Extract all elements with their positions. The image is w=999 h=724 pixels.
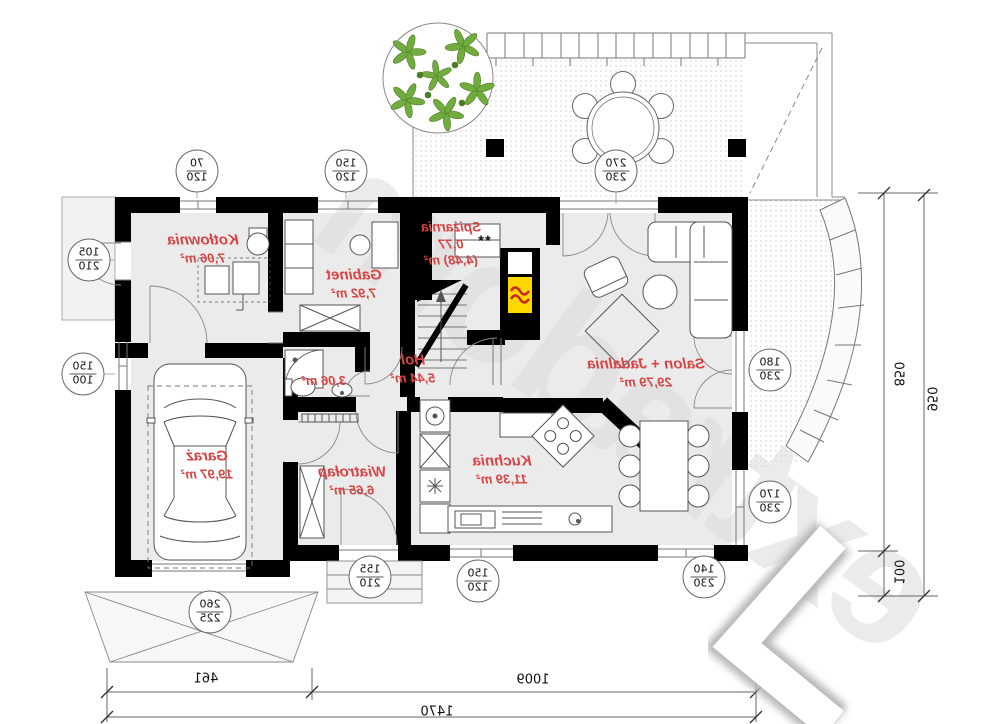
- dim-tag-kitchen-window-150x120: 150120: [457, 560, 500, 603]
- hall-cabinets: [420, 400, 450, 533]
- pantry-note-marker: **: [477, 233, 491, 250]
- floor-plan-page: extradom: [0, 0, 999, 724]
- dim-tag-side-door-105x210: 105210: [68, 239, 111, 282]
- dim-tag-terrace-door-270x230: 270230: [595, 150, 638, 193]
- dim-front-main: 1009: [516, 673, 549, 688]
- dim-tag-window-170x230: 170230: [749, 481, 792, 524]
- dim-terrace-step: 100: [891, 560, 906, 585]
- dim-depth-total: 950: [924, 387, 939, 412]
- dim-depth: 850: [891, 362, 906, 387]
- dim-front-total: 1470: [420, 705, 453, 720]
- room-label-salon: Salon + Jadalnia 29,79 m²: [587, 356, 705, 391]
- floor-plan-drawing: extradom: [0, 0, 999, 724]
- dim-tag-balcony-door-180x230: 180230: [749, 349, 792, 392]
- room-label-kotlownia: Kotłownia 7,06 m²: [167, 232, 239, 267]
- room-label-kuchnia: Kuchnia 11,39 m²: [472, 453, 531, 488]
- dim-front-garage: 461: [194, 672, 219, 687]
- dim-tag-front-door-155x210: 155210: [349, 556, 392, 599]
- room-label-bathroom: 3,06 m²: [302, 373, 347, 389]
- dim-tag-garage-window-150x100: 150100: [62, 353, 105, 396]
- room-label-hol: Hol 5,44 m²: [391, 352, 436, 387]
- dim-tag-window-140x230: 140230: [683, 556, 726, 599]
- dim-tag-garage-door-260x225: 260225: [189, 591, 232, 634]
- fireplace: [500, 248, 540, 340]
- room-label-gabinet: Gabinet 7,92 m²: [326, 267, 382, 302]
- room-label-wiatrolap: Wiatrołap 6,65 m²: [318, 464, 386, 499]
- dim-tag-window-70x120: 70120: [176, 150, 219, 193]
- dim-tag-window-150x120: 150120: [325, 150, 368, 193]
- room-label-garaz: Garaż 19,97 m²: [181, 448, 233, 483]
- room-label-spizarnia: Spiżarnia 0,77 (4,48) m²: [421, 219, 481, 268]
